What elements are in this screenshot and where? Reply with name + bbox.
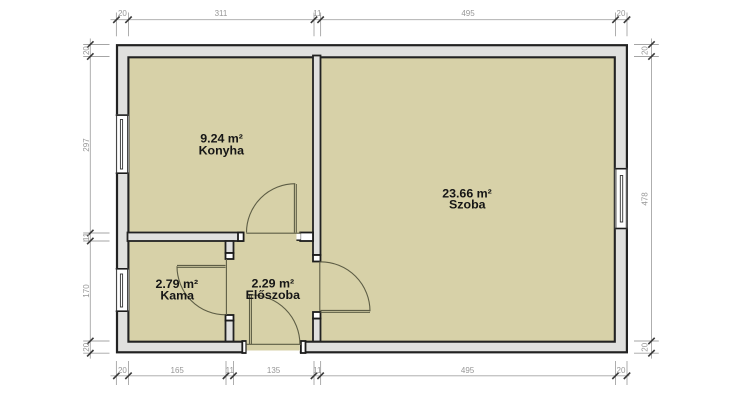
svg-text:20: 20 (640, 46, 649, 55)
svg-text:20: 20 (617, 9, 626, 18)
svg-text:Konyha: Konyha (199, 143, 245, 157)
svg-text:Kama: Kama (160, 289, 194, 303)
svg-text:Előszoba: Előszoba (246, 288, 300, 302)
svg-text:20: 20 (640, 342, 649, 351)
svg-text:11: 11 (82, 232, 91, 241)
svg-text:11: 11 (313, 366, 322, 375)
svg-text:20: 20 (82, 342, 91, 351)
svg-text:478: 478 (640, 192, 649, 206)
svg-text:311: 311 (215, 9, 228, 18)
svg-text:170: 170 (82, 284, 91, 298)
svg-text:11: 11 (226, 366, 235, 375)
svg-text:297: 297 (82, 138, 91, 152)
svg-text:20: 20 (118, 366, 127, 375)
svg-text:Szoba: Szoba (449, 198, 486, 212)
svg-text:20: 20 (82, 46, 91, 55)
svg-text:165: 165 (171, 366, 185, 375)
svg-text:495: 495 (461, 366, 475, 375)
svg-text:135: 135 (267, 366, 281, 375)
svg-text:11: 11 (313, 9, 322, 18)
svg-text:20: 20 (617, 366, 626, 375)
svg-text:20: 20 (118, 9, 127, 18)
svg-text:495: 495 (461, 9, 475, 18)
